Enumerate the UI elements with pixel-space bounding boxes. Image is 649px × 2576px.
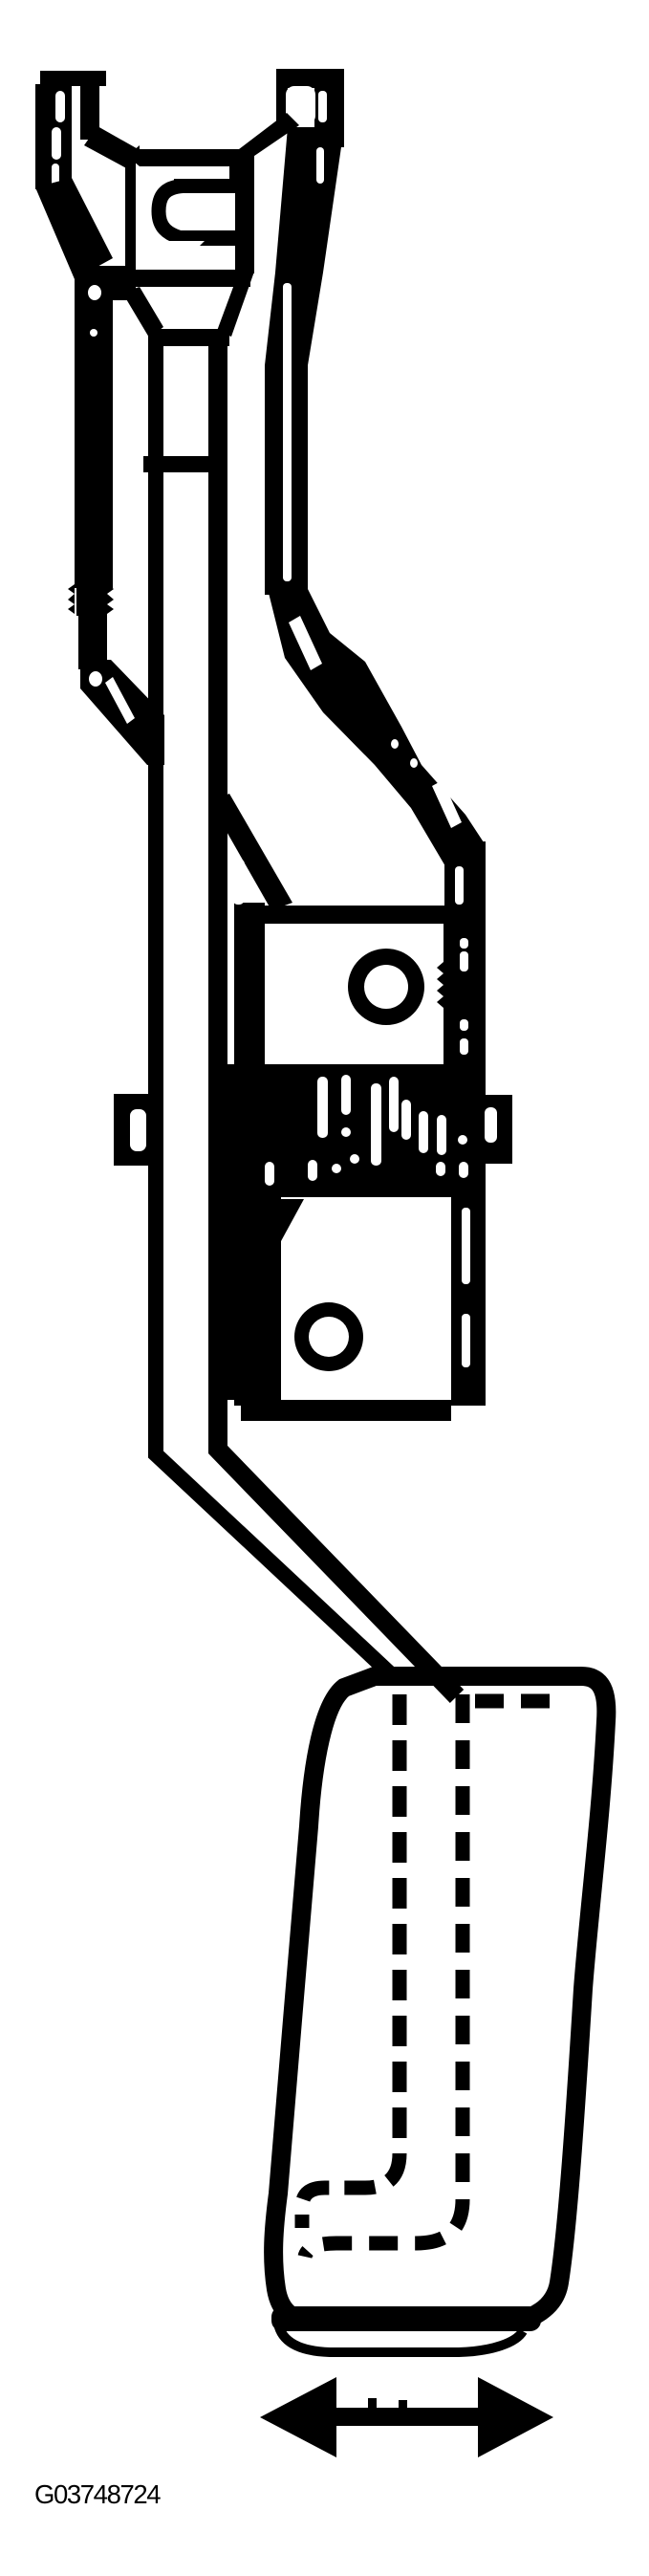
svg-text:G03748724: G03748724: [34, 2479, 161, 2509]
